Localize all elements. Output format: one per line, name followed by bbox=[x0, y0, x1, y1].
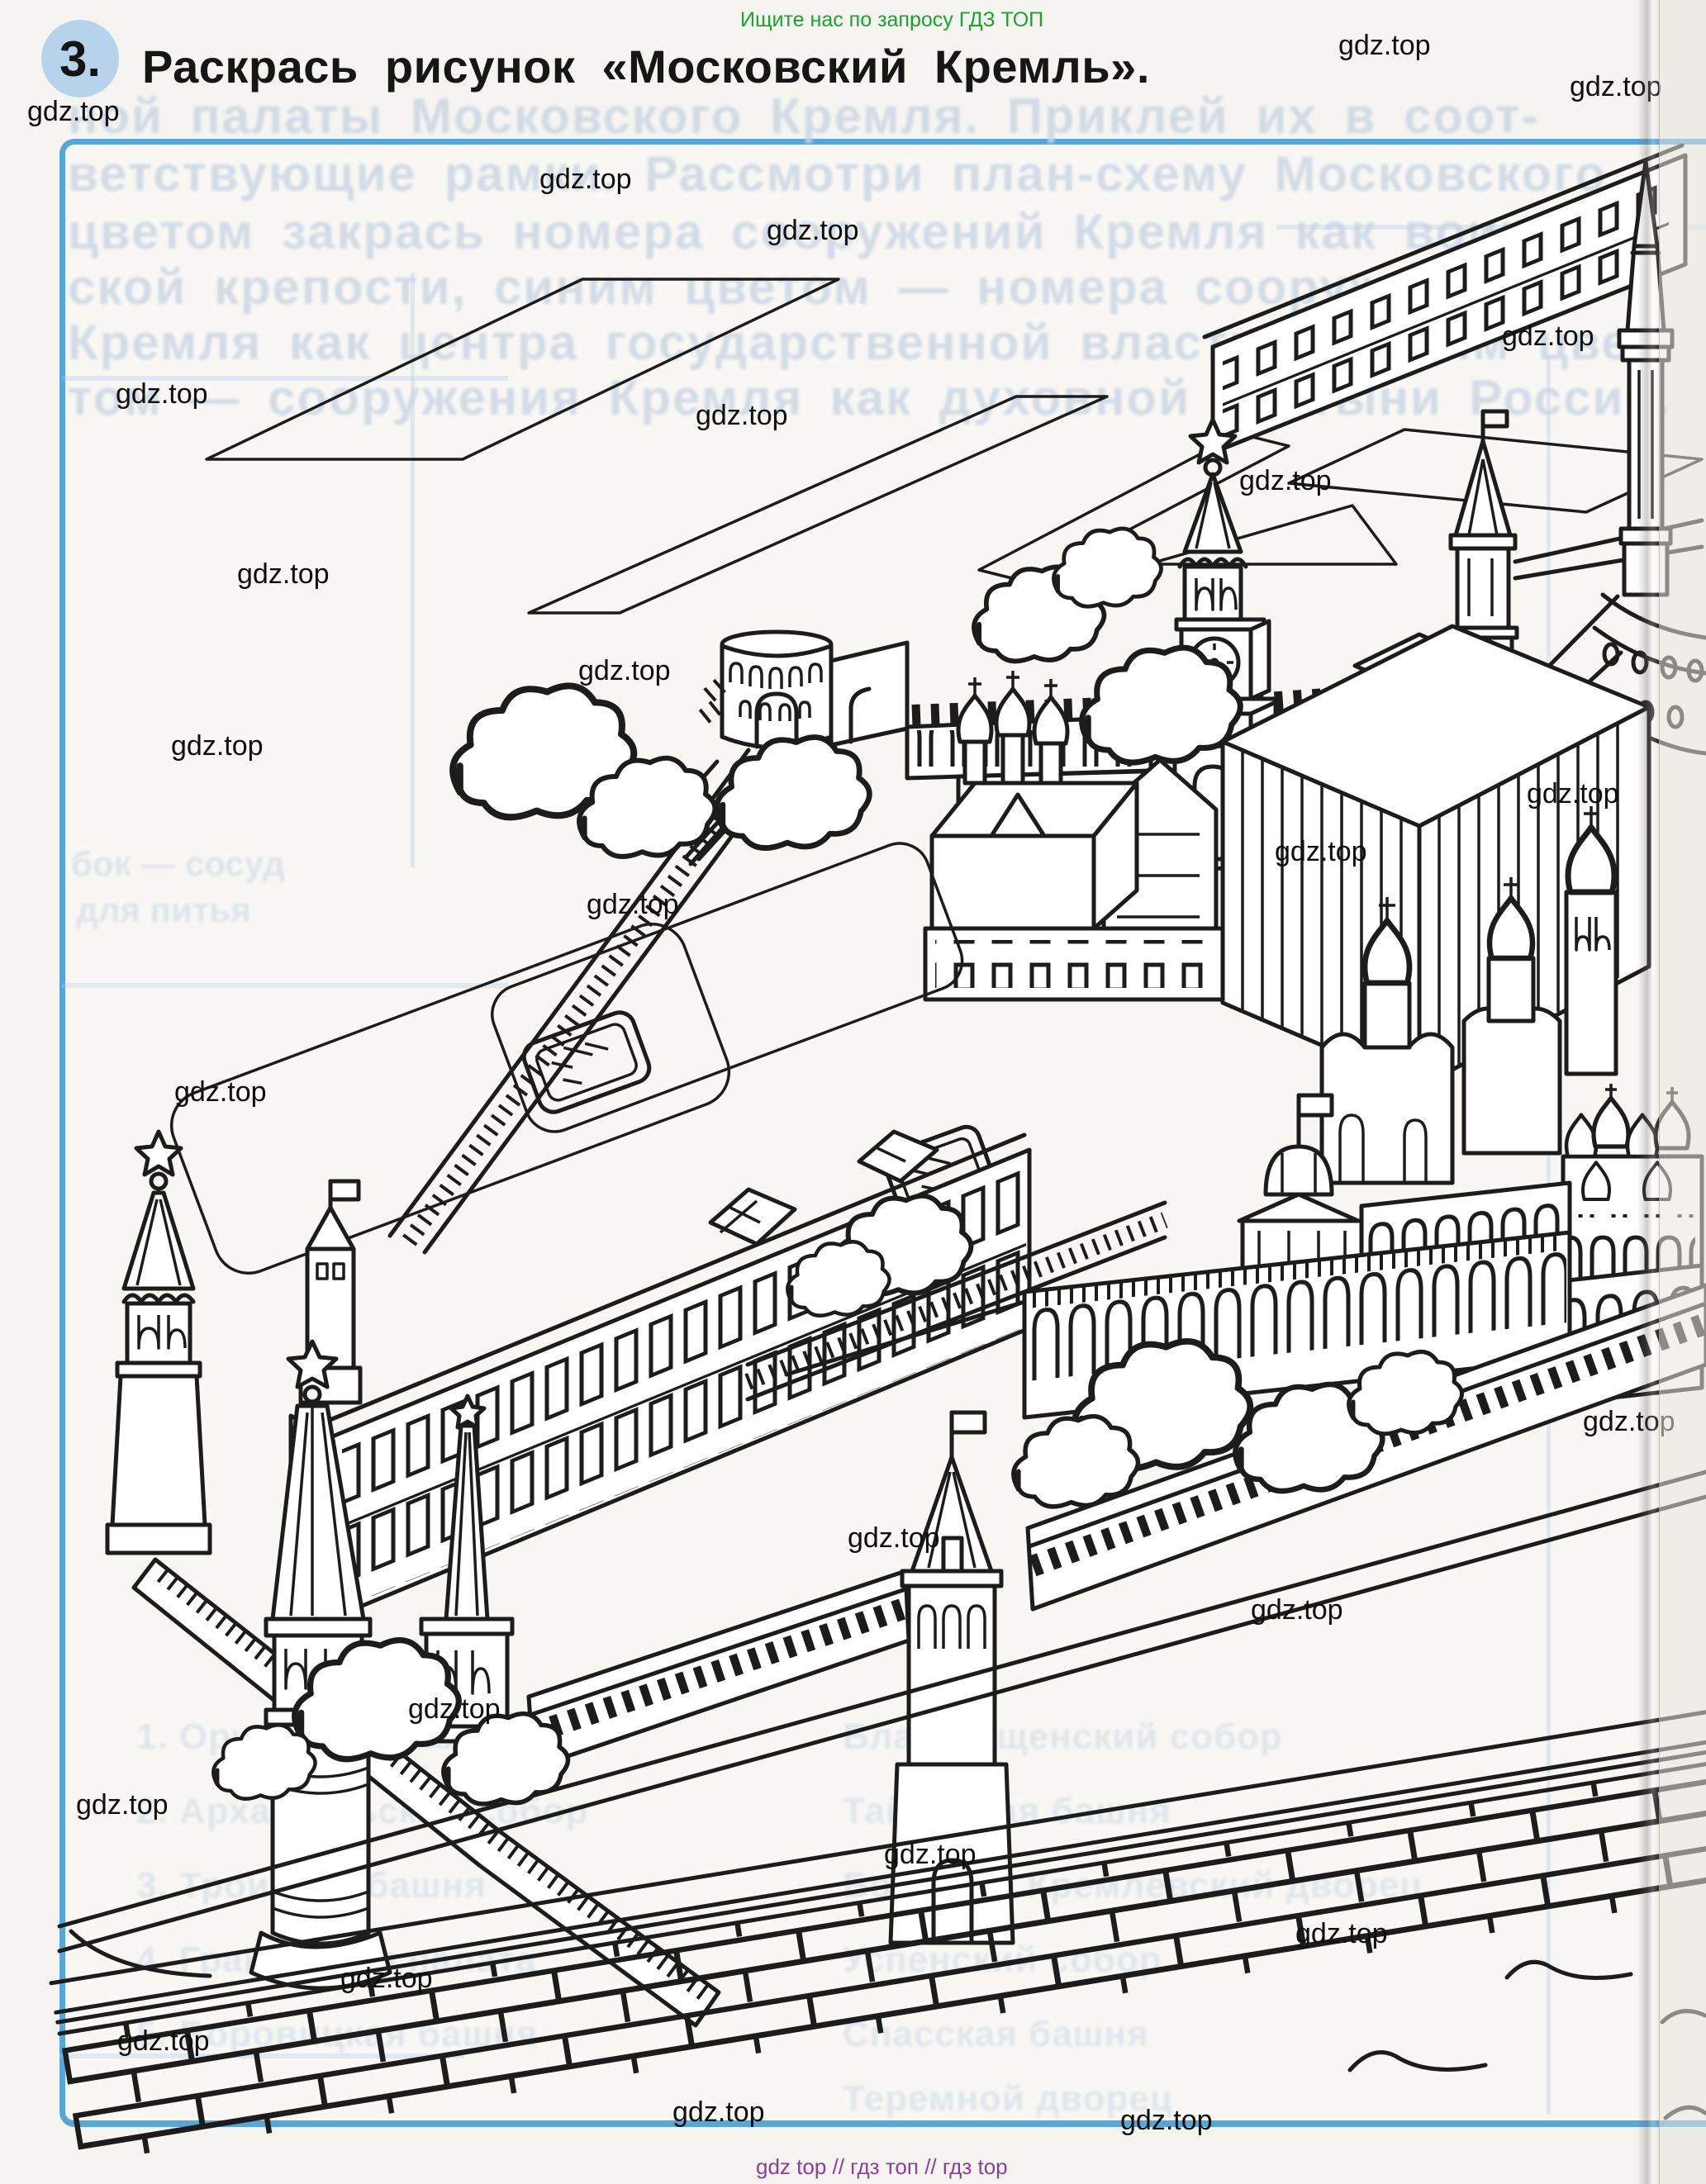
watermark: gdz.top bbox=[587, 889, 679, 921]
flag-icon bbox=[330, 1181, 359, 1199]
watermark: gdz.top bbox=[237, 558, 330, 591]
watermark: gdz.top bbox=[27, 96, 120, 128]
arsenal-building bbox=[1205, 145, 1685, 453]
kutafya-tower bbox=[390, 632, 907, 1252]
watermark: gdz.top bbox=[884, 1839, 977, 1871]
watermark: gdz.top bbox=[696, 400, 788, 432]
watermark: gdz.top bbox=[1527, 778, 1619, 810]
watermark: gdz.top bbox=[76, 1789, 169, 1821]
garden-beds bbox=[520, 1009, 996, 1217]
watermark: gdz.top bbox=[578, 655, 671, 687]
terem-domes bbox=[958, 671, 1067, 783]
watermark: gdz.top bbox=[340, 1963, 433, 1995]
watermark: gdz.top bbox=[171, 730, 264, 762]
watermark: gdz.top bbox=[117, 2025, 210, 2058]
flag-icon bbox=[1299, 1095, 1332, 1115]
watermark: gdz.top bbox=[1120, 2105, 1213, 2137]
watermark: gdz.top bbox=[408, 1693, 501, 1726]
watermark: gdz.top bbox=[174, 1076, 267, 1109]
watermark: gdz.top bbox=[1502, 320, 1594, 353]
watermark: gdz.top bbox=[767, 215, 859, 247]
watermark: gdz.top bbox=[1251, 1594, 1343, 1626]
page-fold bbox=[1637, 0, 1659, 2184]
watermark: gdz.top bbox=[1295, 1918, 1388, 1950]
watermark: gdz.top bbox=[672, 2096, 765, 2129]
flag-icon bbox=[952, 1412, 985, 1432]
watermark: gdz.top bbox=[1275, 836, 1367, 868]
watermark: gdz.top bbox=[1239, 465, 1332, 497]
watermark: gdz.top bbox=[116, 378, 208, 411]
footer-text: gdz top // гдз топ // гдз top bbox=[756, 2154, 1008, 2180]
watermark: gdz.top bbox=[848, 1522, 940, 1555]
ivan-bell-tower bbox=[1566, 806, 1616, 1074]
next-page-edge bbox=[1659, 0, 1706, 2184]
watermark: gdz.top bbox=[539, 164, 632, 196]
workbook-page: { "page": { "header_link": "Ищите нас по… bbox=[0, 0, 1706, 2184]
watermark: gdz.top bbox=[1338, 30, 1431, 62]
